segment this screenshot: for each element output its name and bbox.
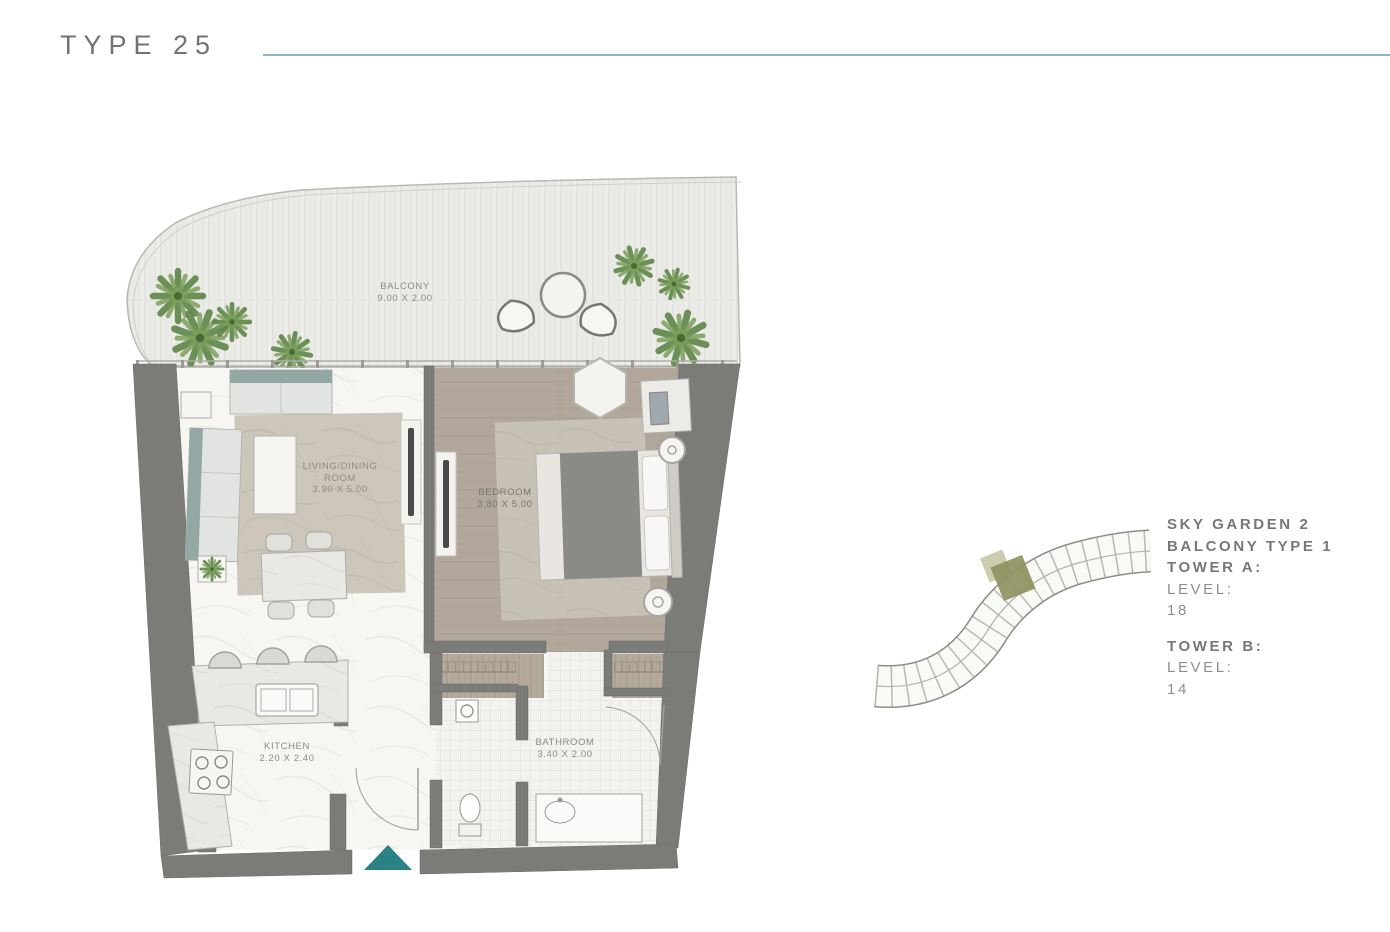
pillow: [644, 516, 670, 571]
bed: [536, 447, 682, 582]
page-title: TYPE 25: [60, 30, 217, 61]
info-line-balcony-type: BALCONY TYPE 1: [1167, 536, 1389, 558]
bathroom-label: BATHROOM 3.40 X 2.00: [500, 737, 630, 760]
room-name: BATHROOM: [500, 737, 630, 749]
wall-kitchen-b: [330, 794, 346, 850]
wall-bedroom-south-b: [609, 641, 668, 653]
room-name: KITCHEN: [222, 741, 352, 753]
side-table: [181, 392, 211, 418]
bed-duvet: [560, 451, 642, 580]
sofa-top-back: [230, 370, 332, 383]
page: TYPE 25 BALCONY 9.00 X 2.00 LIVING/DININ…: [0, 0, 1390, 932]
info-line-level-label: LEVEL:: [1167, 579, 1389, 601]
palm-plant-icon: [201, 558, 223, 580]
wall-shower-b: [516, 782, 528, 846]
info-line-level-b: 14: [1167, 679, 1389, 701]
room-dims: 3.90 X 5.00: [265, 484, 415, 496]
wall-wardrobe-right: [604, 688, 670, 696]
room-name: LIVING/DINING: [265, 461, 415, 473]
info-line-level-a: 18: [1167, 600, 1389, 622]
balcony-label: BALCONY 9.00 X 2.00: [345, 281, 465, 304]
round-stool: [644, 588, 672, 616]
info-line-sky-garden: SKY GARDEN 2: [1167, 514, 1389, 536]
floor-plan-canvas: [0, 0, 1390, 932]
room-name2: ROOM: [265, 473, 415, 485]
wall-bottom-left: [161, 850, 352, 878]
wall-right-bathroom: [656, 652, 700, 848]
unit-info-panel: SKY GARDEN 2 BALCONY TYPE 1 TOWER A: LEV…: [1167, 514, 1389, 700]
round-table: [541, 273, 585, 317]
bedroom-label: BEDROOM 3.80 X 5.00: [440, 487, 570, 510]
palm-plant-icon: [153, 271, 203, 321]
room-dims: 3.80 X 5.00: [440, 499, 570, 511]
vanity: [536, 794, 642, 842]
room-dims: 9.00 X 2.00: [345, 293, 465, 305]
living-dining-label: LIVING/DINING ROOM 3.90 X 5.00: [265, 461, 415, 496]
dining-table: [261, 551, 347, 602]
pillow: [642, 456, 668, 511]
title-accent-line: [263, 54, 1390, 56]
info-line-tower-a: TOWER A:: [1167, 557, 1389, 579]
key-plan: [876, 549, 1150, 686]
wall-shower-a: [516, 686, 528, 740]
info-line-tower-b: TOWER B:: [1167, 636, 1389, 658]
kitchen-label: KITCHEN 2.20 X 2.40: [222, 741, 352, 764]
wall-partition: [424, 366, 434, 650]
bedroom-console: [641, 379, 692, 433]
sofa-chaise: [185, 428, 242, 562]
shower-head: [456, 700, 478, 722]
wall-bath-left-b: [430, 780, 442, 848]
bathroom-entry-tile: [547, 652, 609, 700]
toilet: [460, 794, 480, 822]
wall-wardrobe-left: [432, 684, 518, 692]
wall-bedroom-south-a: [424, 641, 546, 653]
bedside-table: [659, 437, 685, 463]
room-name: BALCONY: [345, 281, 465, 293]
room-dims: 2.20 X 2.40: [222, 753, 352, 765]
room-name: BEDROOM: [440, 487, 570, 499]
room-dims: 3.40 X 2.00: [500, 749, 630, 761]
info-line-level-label-b: LEVEL:: [1167, 657, 1389, 679]
